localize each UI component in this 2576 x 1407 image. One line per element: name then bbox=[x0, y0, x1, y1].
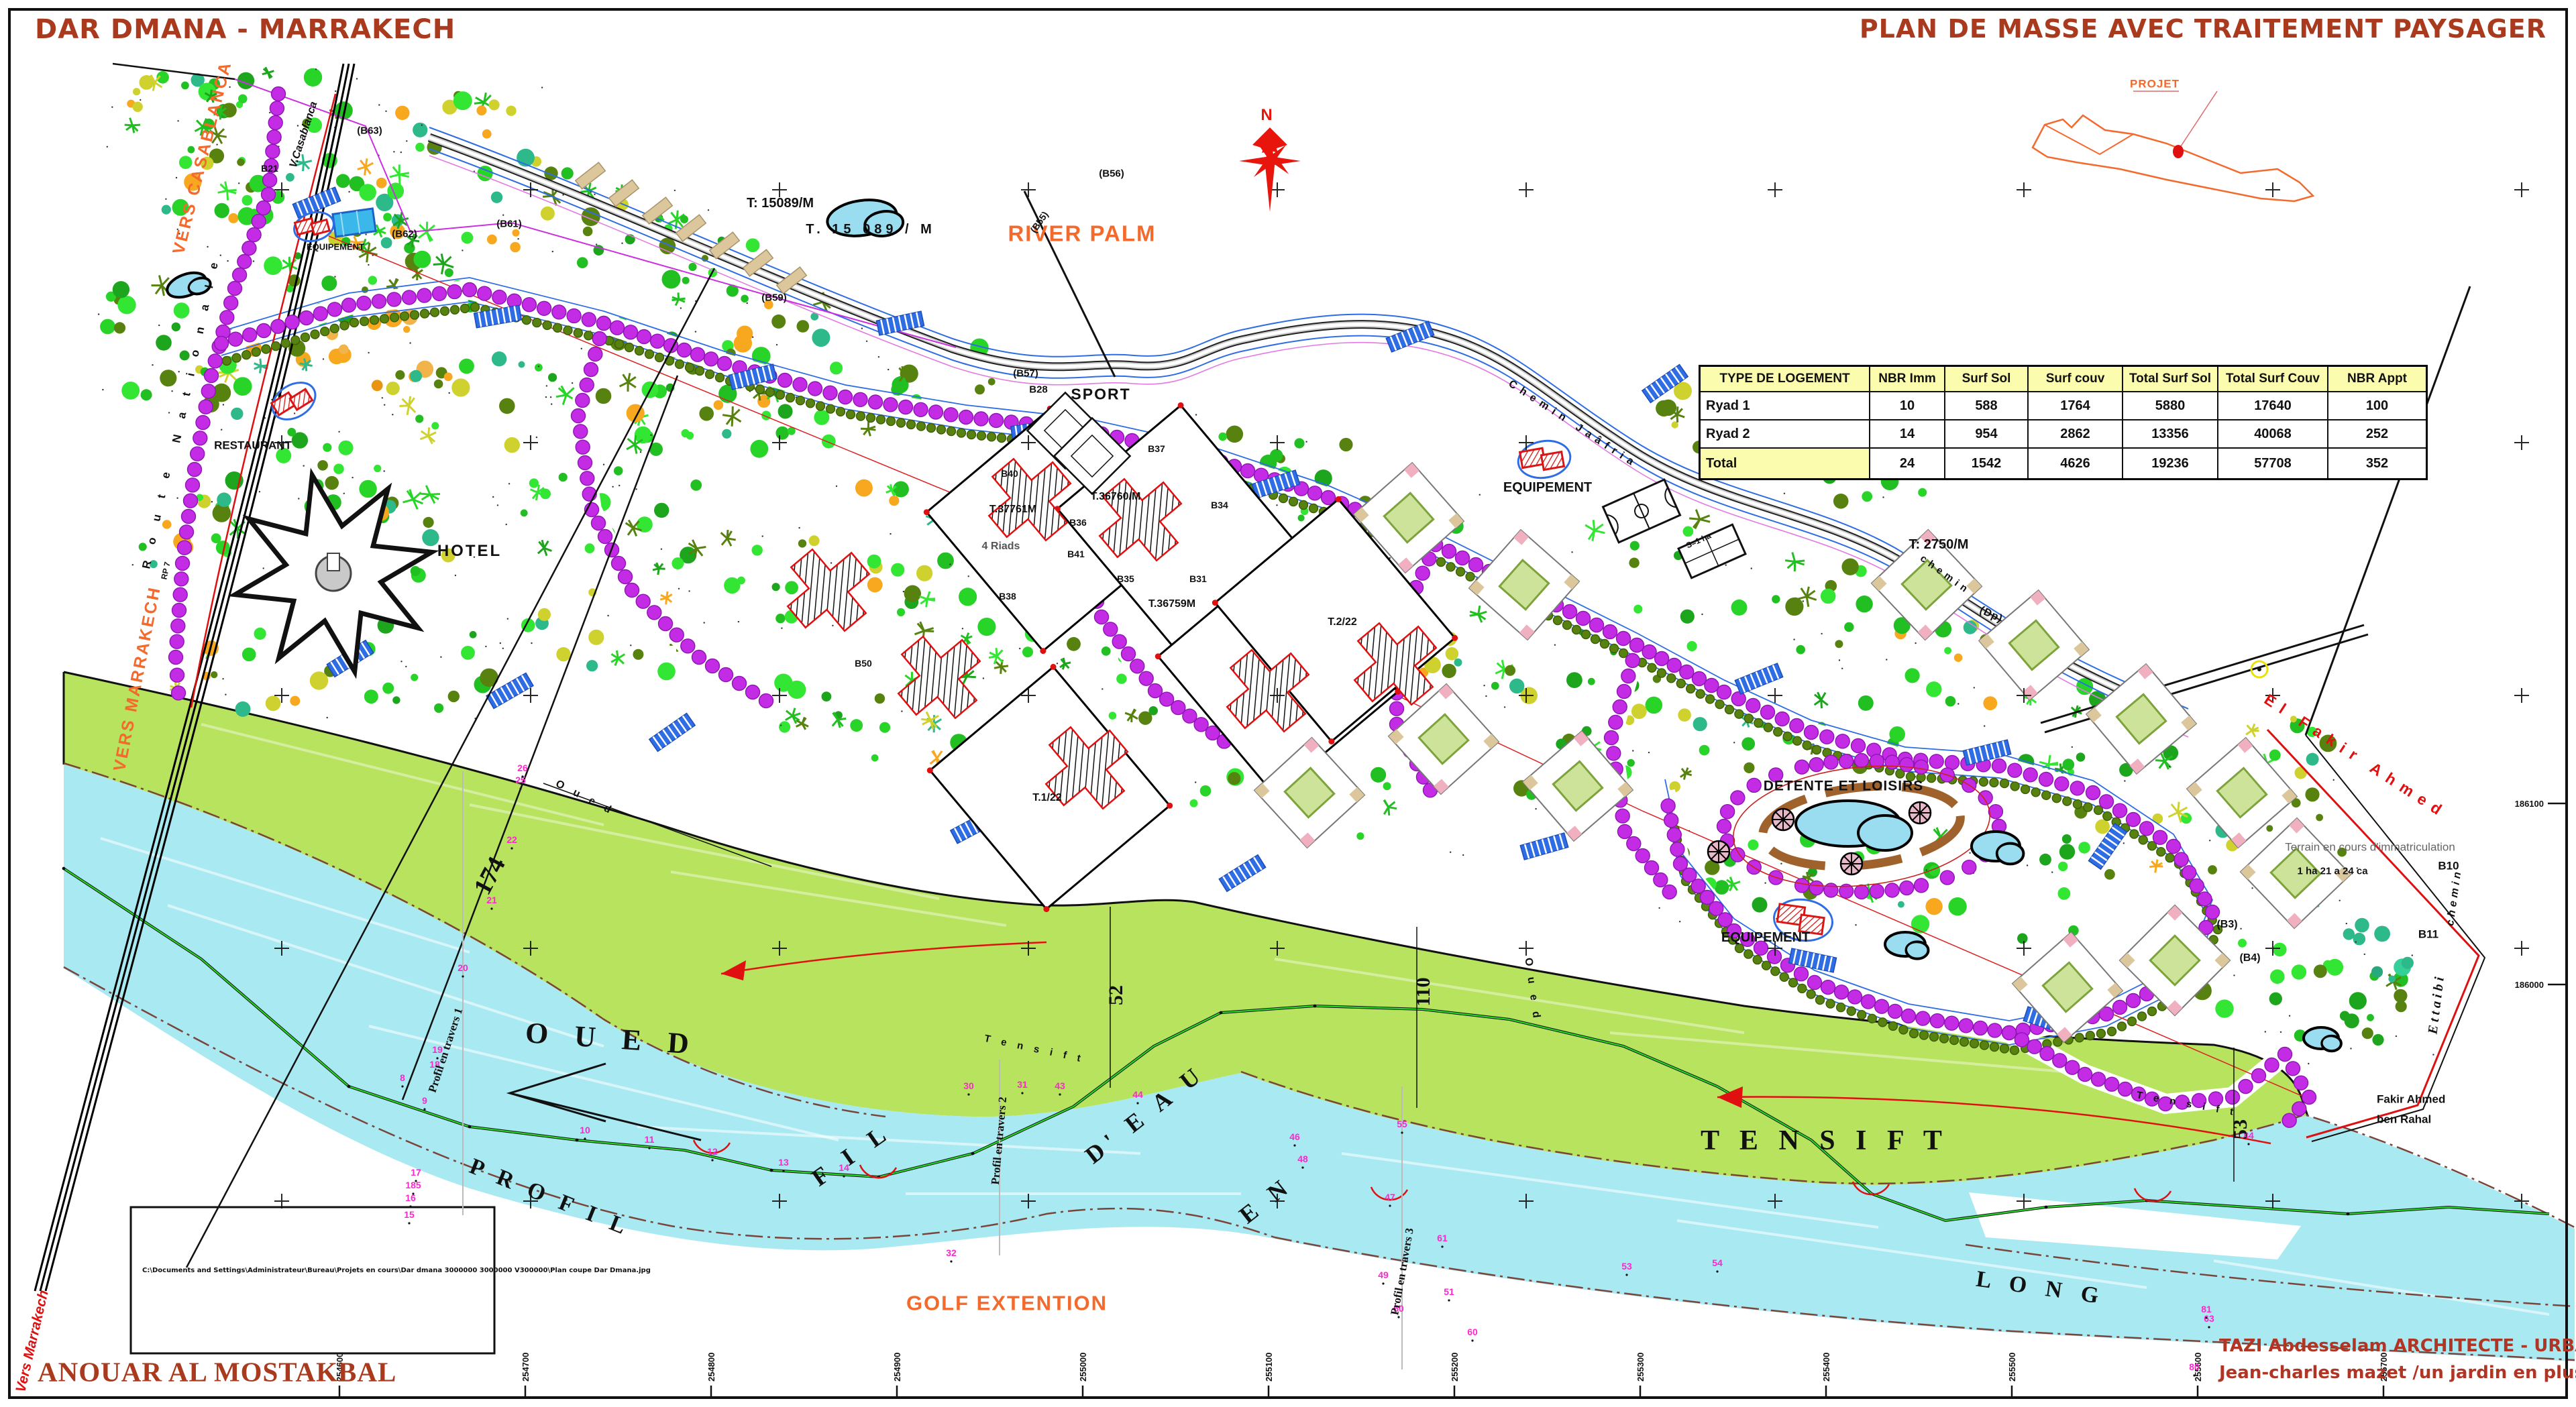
survey-point: 47 bbox=[1385, 1192, 1395, 1202]
table-cell: Total Surf Couv bbox=[2218, 366, 2328, 392]
pond bbox=[1885, 932, 1929, 959]
compass-rose bbox=[1238, 127, 1302, 212]
table-cell: 40068 bbox=[2218, 420, 2328, 448]
right-axis-label: 186000 bbox=[2515, 980, 2544, 990]
survey-point: 61 bbox=[1437, 1233, 1448, 1243]
table-cell: 100 bbox=[2328, 392, 2427, 420]
survey-point: 51 bbox=[1444, 1286, 1454, 1297]
ryad-building bbox=[2241, 818, 2351, 928]
table-cell: 57708 bbox=[2218, 448, 2328, 480]
survey-point: 22 bbox=[506, 834, 517, 845]
table-cell: Total Surf Sol bbox=[2123, 366, 2218, 392]
table-cell: Ryad 2 bbox=[1700, 420, 1870, 448]
survey-point: 26 bbox=[517, 763, 528, 773]
parking-strip bbox=[1219, 855, 1265, 892]
table-cell: 954 bbox=[1945, 420, 2028, 448]
survey-point: 81 bbox=[2201, 1304, 2212, 1314]
survey-point: 49 bbox=[1378, 1270, 1389, 1280]
survey-point: 10 bbox=[580, 1125, 590, 1135]
bottom-axis-label: 255400 bbox=[1821, 1353, 1831, 1382]
equipment-icon bbox=[1771, 896, 1835, 944]
ryad-building-hatched bbox=[881, 619, 998, 736]
survey-point: 12 bbox=[707, 1146, 718, 1157]
bottom-axis-label: 254900 bbox=[892, 1353, 902, 1382]
survey-point: 63 bbox=[2204, 1313, 2214, 1324]
project-location-dot bbox=[2173, 145, 2184, 158]
bottom-axis-label: 254600 bbox=[335, 1353, 345, 1382]
table-cell: Total bbox=[1700, 448, 1870, 480]
table-cell: Surf couv bbox=[2028, 366, 2123, 392]
bottom-axis-label: 255200 bbox=[1450, 1353, 1460, 1382]
table-cell: 1542 bbox=[1945, 448, 2028, 480]
kiosk-icon bbox=[1772, 809, 1794, 830]
survey-point: 43 bbox=[1055, 1080, 1065, 1091]
survey-point: 17 bbox=[411, 1167, 421, 1178]
swimming-pool bbox=[333, 209, 376, 237]
survey-point: 25 bbox=[515, 775, 526, 785]
table-cell: 5880 bbox=[2123, 392, 2218, 420]
survey-point: 13 bbox=[778, 1157, 789, 1168]
kiosk-icon bbox=[1841, 853, 1862, 875]
bottom-axis-label: 255700 bbox=[2379, 1353, 2389, 1382]
table-cell: 1764 bbox=[2028, 392, 2123, 420]
table-cell: 14 bbox=[1870, 420, 1945, 448]
table-cell: Surf Sol bbox=[1945, 366, 2028, 392]
table-cell: Ryad 1 bbox=[1700, 392, 1870, 420]
right-axis-label: 186100 bbox=[2515, 799, 2544, 809]
bottom-axis-label: 254700 bbox=[521, 1353, 531, 1382]
bottom-axis-label: 255500 bbox=[2007, 1353, 2017, 1382]
table-cell: 10 bbox=[1870, 392, 1945, 420]
survey-point: 54 bbox=[1712, 1257, 1723, 1268]
survey-point: 48 bbox=[1297, 1153, 1308, 1164]
survey-point: 50 bbox=[1393, 1303, 1404, 1314]
parking-strip bbox=[1520, 833, 1568, 860]
table-cell: 4626 bbox=[2028, 448, 2123, 480]
bottom-axis-label: 255000 bbox=[1078, 1353, 1088, 1382]
table-cell: 588 bbox=[1945, 392, 2028, 420]
table-cell: 24 bbox=[1870, 448, 1945, 480]
parking-strip bbox=[649, 713, 695, 751]
survey-point: 30 bbox=[963, 1080, 974, 1091]
location-inset-sketch bbox=[2033, 91, 2313, 201]
kiosk-icon bbox=[1909, 802, 1931, 824]
survey-point: 31 bbox=[1017, 1079, 1028, 1090]
table-cell: 352 bbox=[2328, 448, 2427, 480]
bottom-axis-label: 255100 bbox=[1264, 1353, 1274, 1382]
pond bbox=[164, 267, 213, 304]
bottom-axis-label: 255300 bbox=[1635, 1353, 1646, 1382]
pond bbox=[1972, 832, 2023, 864]
table-cell: 252 bbox=[2328, 420, 2427, 448]
table-cell: 19236 bbox=[2123, 448, 2218, 480]
bottom-axis-label: 254800 bbox=[706, 1353, 716, 1382]
survey-point: 21 bbox=[486, 895, 497, 905]
survey-point: 20 bbox=[458, 962, 468, 973]
survey-point: 55 bbox=[1397, 1119, 1407, 1129]
survey-point: 80 bbox=[2189, 1361, 2200, 1372]
survey-point: 53 bbox=[1621, 1261, 1632, 1272]
table-cell: 17640 bbox=[2218, 392, 2328, 420]
pond bbox=[825, 195, 905, 243]
housing-table: TYPE DE LOGEMENTNBR ImmSurf SolSurf couv… bbox=[1699, 365, 2428, 480]
table-cell: NBR Imm bbox=[1870, 366, 1945, 392]
kiosk-icon bbox=[1708, 841, 1729, 862]
table-cell: 2862 bbox=[2028, 420, 2123, 448]
table-cell: TYPE DE LOGEMENT bbox=[1700, 366, 1870, 392]
survey-point: 8 bbox=[400, 1072, 405, 1083]
survey-point: 18 bbox=[429, 1059, 440, 1070]
ryad-building bbox=[1469, 530, 1579, 640]
survey-point: 9 bbox=[422, 1095, 427, 1106]
survey-point: 19 bbox=[432, 1044, 443, 1055]
survey-point: 44 bbox=[1132, 1089, 1143, 1100]
site-plan-drawing: 2546002547002548002549002550002551002552… bbox=[0, 0, 2576, 1407]
basketball-court bbox=[1603, 480, 1680, 543]
site-plan-canvas: 2546002547002548002549002550002551002552… bbox=[0, 0, 2576, 1407]
survey-point: 11 bbox=[645, 1134, 655, 1145]
survey-point: 14 bbox=[839, 1162, 849, 1173]
pond bbox=[2304, 1027, 2341, 1051]
table-cell: NBR Appt bbox=[2328, 366, 2427, 392]
ryad-building bbox=[1979, 590, 2089, 700]
survey-point: 84 bbox=[2243, 1130, 2254, 1141]
survey-point: 60 bbox=[1467, 1327, 1478, 1337]
note-box bbox=[131, 1207, 494, 1353]
survey-point: 46 bbox=[1289, 1131, 1300, 1142]
survey-point: 185 bbox=[405, 1180, 421, 1190]
survey-point: 15 bbox=[404, 1209, 415, 1220]
equipment-icon bbox=[1515, 437, 1573, 482]
survey-point: 32 bbox=[946, 1247, 957, 1258]
survey-point: 16 bbox=[405, 1192, 416, 1203]
table-cell: 13356 bbox=[2123, 420, 2218, 448]
